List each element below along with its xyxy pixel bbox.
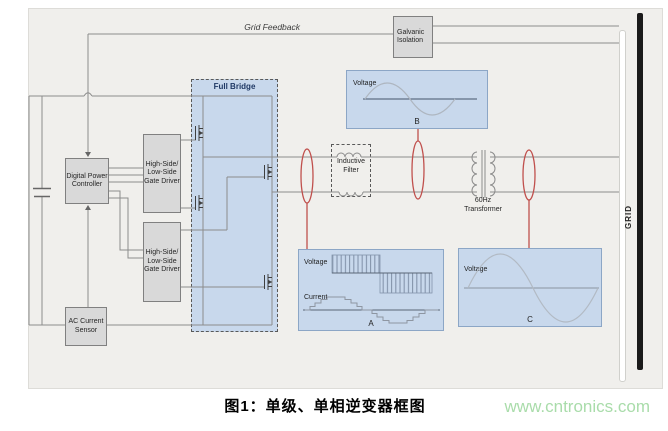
circuit-wiring (0, 0, 668, 431)
grid-feedback-label: Grid Feedback (205, 22, 300, 32)
waveform-b-trace (363, 83, 477, 115)
dc-bus-and-capacitor (29, 93, 203, 325)
feedback-arrowhead (85, 152, 91, 157)
watermark: www.cntronics.com (450, 397, 650, 417)
inverter-block-diagram: Full Bridge Inductive Filter Voltage B V… (0, 0, 668, 431)
probe-markers (301, 129, 535, 249)
bridge-rails-and-outputs (203, 96, 477, 325)
transformer-symbol (472, 150, 619, 198)
transformer-label: 60Hz Transformer (458, 196, 508, 214)
waveform-a-trace (303, 255, 440, 323)
sensor-arrowhead (85, 205, 91, 210)
mosfet-symbols (196, 125, 273, 290)
controller-gate-driver-wires (109, 168, 143, 258)
grid-label: GRID (624, 187, 638, 247)
waveform-c-trace (464, 254, 599, 322)
gate-wires (181, 140, 265, 287)
grid-feedback-wire (88, 26, 619, 152)
